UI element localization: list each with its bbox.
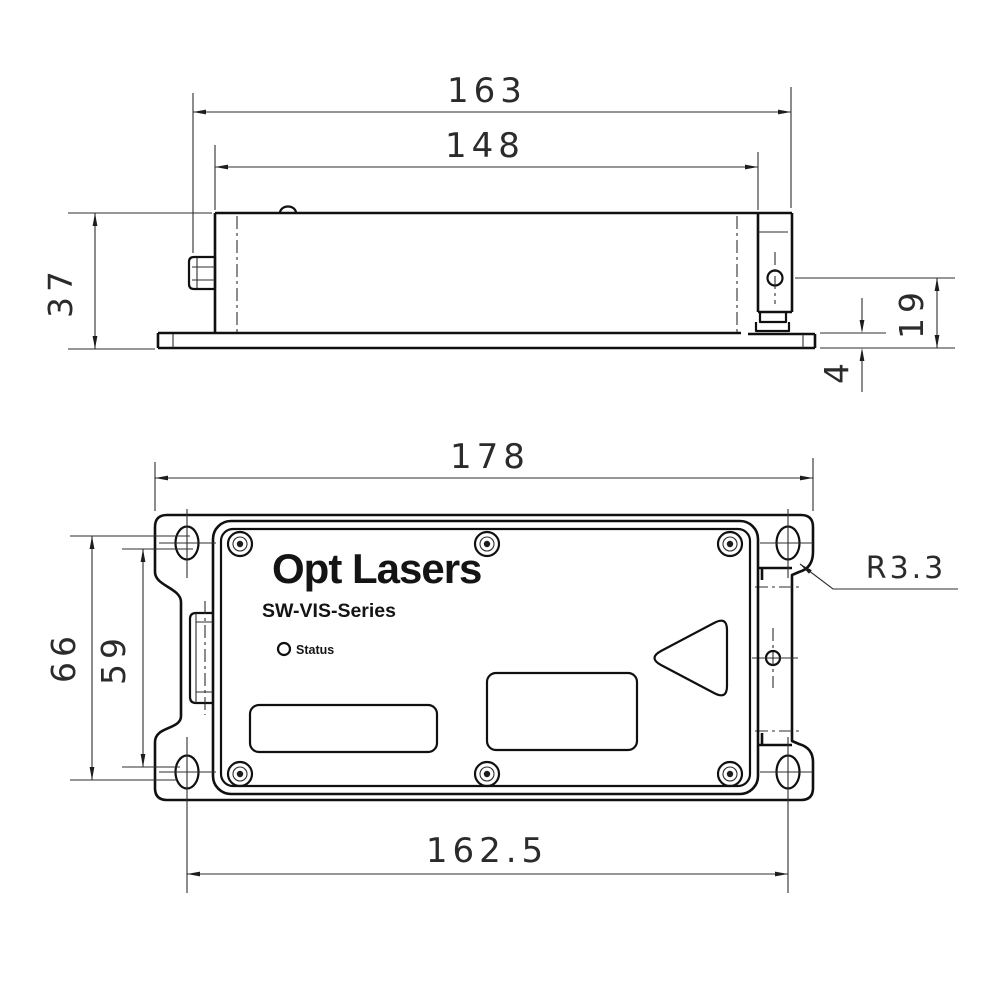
dim-19-arrow-top bbox=[935, 278, 940, 291]
series-text: SW-VIS-Series bbox=[262, 600, 396, 622]
lid-screw bbox=[475, 762, 499, 786]
dim-163-arrow-right bbox=[778, 110, 791, 115]
dim-37-lines bbox=[68, 213, 212, 349]
lid-screw bbox=[228, 762, 252, 786]
lid-recess-left bbox=[250, 705, 437, 752]
screw-center bbox=[484, 771, 490, 777]
screw-center bbox=[727, 771, 733, 777]
dim-slot-spacing: 162.5 bbox=[187, 831, 788, 876]
dim-59-arrow-top bbox=[141, 549, 146, 562]
dim-4-label: 4 bbox=[817, 358, 856, 384]
dim-4-arrow-bottom bbox=[860, 348, 865, 361]
lid-screw bbox=[718, 762, 742, 786]
dim-178-arrow-left bbox=[155, 476, 168, 481]
base-plate-slot-edges bbox=[173, 334, 803, 348]
dim-37-arrow-top bbox=[93, 213, 98, 226]
dim-178-label: 178 bbox=[450, 437, 530, 477]
connector-outline bbox=[190, 613, 213, 703]
screw-center bbox=[237, 771, 243, 777]
dim-19-label: 19 bbox=[892, 287, 931, 339]
dim-overall-width: 178 bbox=[155, 437, 813, 511]
dim-4-arrow-top bbox=[860, 320, 865, 333]
front-face-steps bbox=[758, 568, 792, 745]
base-plate-outline bbox=[155, 515, 813, 800]
dim-148-arrow-right bbox=[745, 165, 758, 170]
screw-center bbox=[237, 541, 243, 547]
dim-corner-radius: R3.3 bbox=[800, 551, 958, 589]
dim-178-arrow-right bbox=[800, 476, 813, 481]
technical-drawing: 163 148 37 19 4 bbox=[0, 0, 1000, 1000]
dim-19-arrow-bottom bbox=[935, 335, 940, 348]
dim-148-arrow-left bbox=[215, 165, 228, 170]
status-led bbox=[278, 643, 290, 655]
dim-r33-label: R3.3 bbox=[866, 551, 947, 586]
mounting-bolt-head bbox=[189, 257, 215, 289]
lid-screw bbox=[228, 532, 252, 556]
dim-162-5-label: 162.5 bbox=[426, 831, 548, 871]
mounting-bolt-facets bbox=[192, 258, 215, 288]
side-connector bbox=[190, 601, 213, 715]
dim-163-arrow-left bbox=[193, 110, 206, 115]
dim-66-label: 66 bbox=[44, 631, 83, 683]
side-view: 163 148 37 19 4 bbox=[41, 71, 955, 392]
dim-162-5-arrow-right bbox=[775, 872, 788, 877]
screw-center bbox=[727, 541, 733, 547]
dim-height: 37 bbox=[41, 213, 212, 349]
dim-37-arrow-bottom bbox=[93, 336, 98, 349]
base-plate bbox=[158, 333, 815, 348]
dim-66-arrow-bottom bbox=[90, 767, 95, 780]
screw-center bbox=[484, 541, 490, 547]
dim-slot-span-inner: 59 bbox=[94, 549, 193, 767]
lid-screw bbox=[718, 532, 742, 556]
dim-body-length: 148 bbox=[215, 126, 758, 210]
dim-162-5-arrow-left bbox=[187, 872, 200, 877]
dim-19-lines bbox=[795, 278, 955, 348]
dim-aperture-height: 19 bbox=[795, 278, 955, 348]
status-label: Status bbox=[296, 643, 334, 657]
top-view: Opt Lasers SW-VIS-Series Status 178 66 bbox=[44, 437, 958, 893]
dim-37-label: 37 bbox=[41, 266, 80, 318]
dim-59-arrow-bottom bbox=[141, 754, 146, 767]
dim-163-lines bbox=[193, 87, 791, 253]
drawing-sheet: 163 148 37 19 4 bbox=[0, 0, 1000, 1000]
beam-direction-arrow bbox=[655, 621, 728, 696]
dim-59-label: 59 bbox=[94, 633, 133, 685]
front-face-centerlines bbox=[755, 587, 802, 731]
dim-base-thickness: 4 bbox=[817, 298, 886, 392]
dim-148-label: 148 bbox=[445, 126, 525, 166]
dim-66-arrow-top bbox=[90, 536, 95, 549]
logo-text: Opt Lasers bbox=[272, 545, 481, 592]
lid-recess-center bbox=[487, 673, 637, 750]
side-body-outline bbox=[215, 213, 792, 333]
dim-163-label: 163 bbox=[447, 71, 527, 111]
aperture-block-steps bbox=[756, 312, 789, 331]
